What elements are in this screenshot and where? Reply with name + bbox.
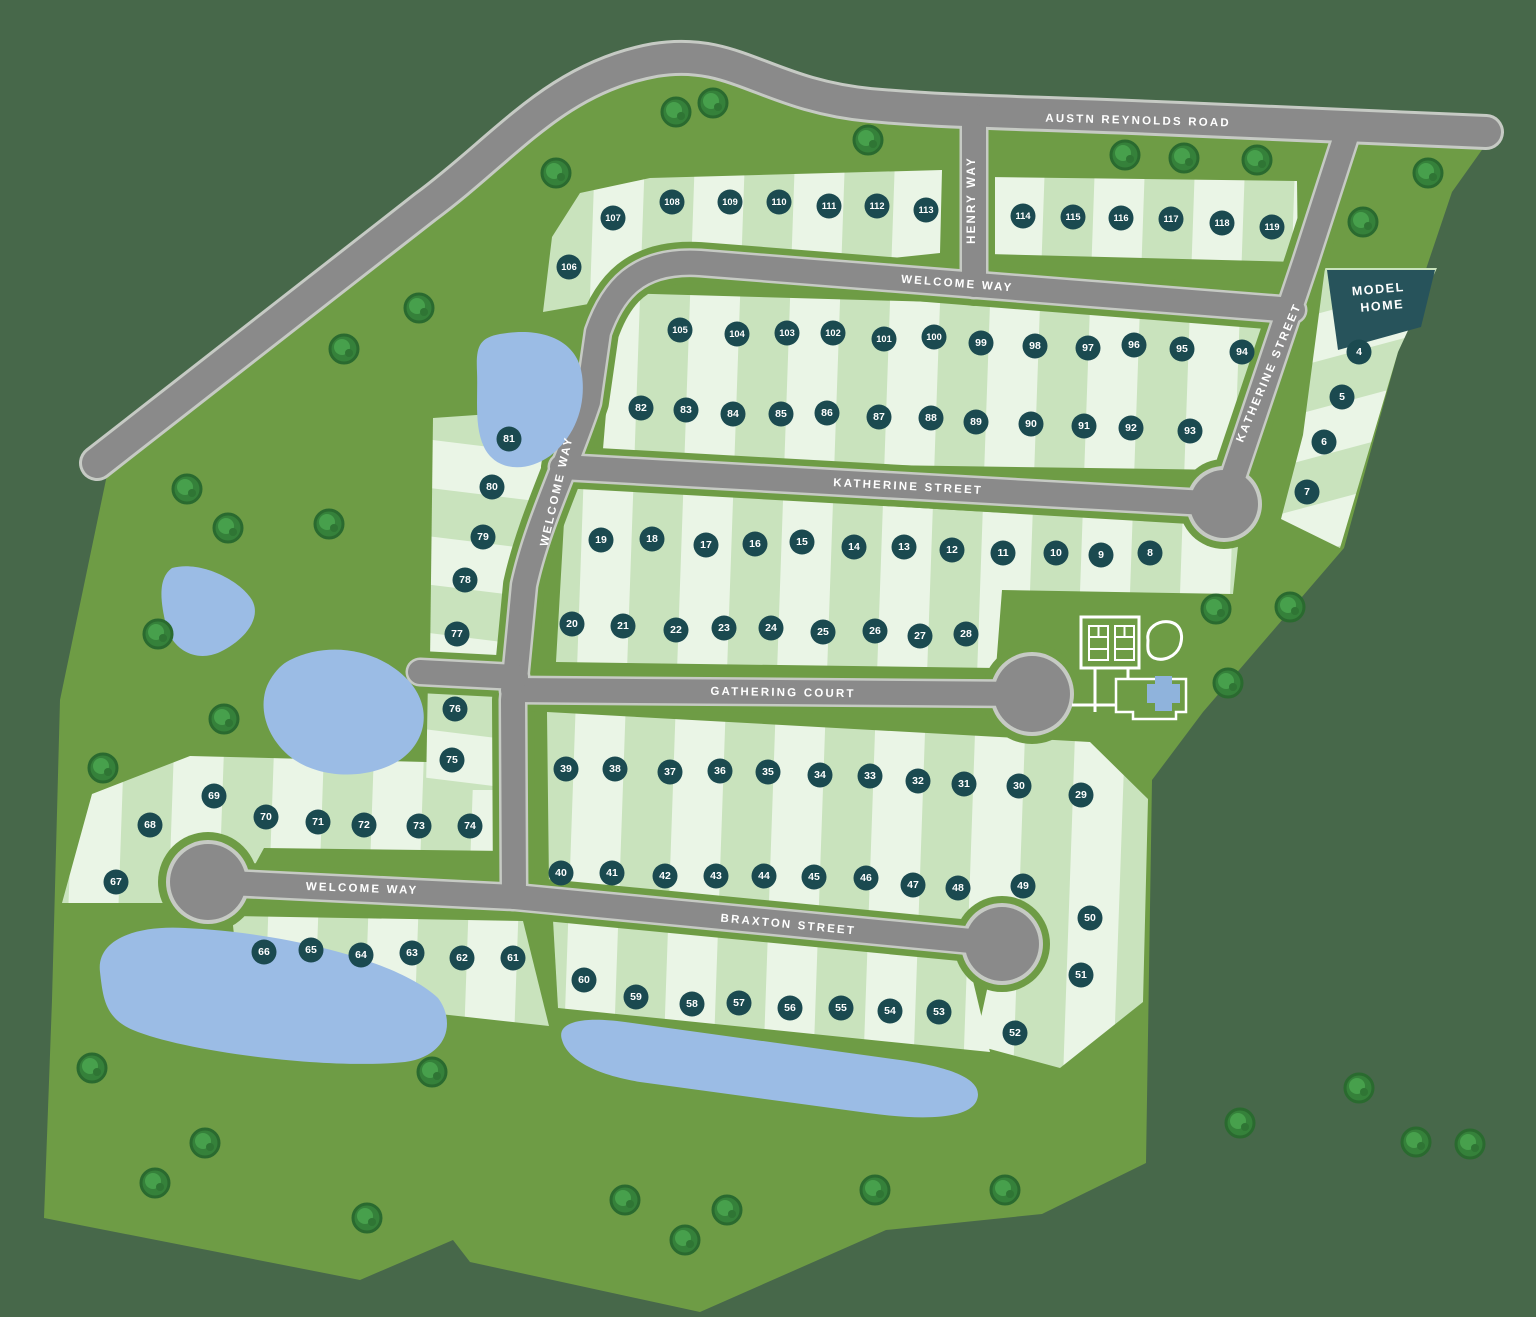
lot-marker-94[interactable]: 94 xyxy=(1230,340,1255,365)
lot-number: 75 xyxy=(446,754,458,766)
lot-number: 56 xyxy=(784,1002,796,1014)
tree-icon xyxy=(78,1054,106,1082)
tree-icon xyxy=(611,1186,639,1214)
lot-marker-23[interactable]: 23 xyxy=(712,616,737,641)
lot-marker-5[interactable]: 5 xyxy=(1330,385,1355,410)
lot-number: 114 xyxy=(1016,211,1032,221)
lot-number: 10 xyxy=(1050,547,1062,559)
lot-marker-9[interactable]: 9 xyxy=(1089,543,1114,568)
lot-marker-32[interactable]: 32 xyxy=(906,769,931,794)
lot-number: 117 xyxy=(1164,214,1179,224)
lot-number: 20 xyxy=(566,618,578,630)
lot-marker-16[interactable]: 16 xyxy=(743,532,768,557)
lot-marker-75[interactable]: 75 xyxy=(440,748,465,773)
lot-number: 65 xyxy=(305,944,317,956)
lot-number: 28 xyxy=(960,628,972,640)
lot-marker-103[interactable]: 103 xyxy=(775,321,800,346)
lot-number: 13 xyxy=(898,541,910,553)
lot-number: 94 xyxy=(1236,346,1248,358)
tree-icon xyxy=(353,1204,381,1232)
lot-marker-17[interactable]: 17 xyxy=(694,533,719,558)
lot-number: 72 xyxy=(358,819,370,831)
tree-icon xyxy=(315,510,343,538)
lot-marker-76[interactable]: 76 xyxy=(443,697,468,722)
lot-number: 97 xyxy=(1082,342,1094,354)
lot-number: 21 xyxy=(617,620,629,632)
street-label-gathering-court: GATHERING COURT xyxy=(710,686,855,701)
lot-number: 22 xyxy=(670,624,682,636)
lot-number: 83 xyxy=(680,404,692,416)
lot-number: 43 xyxy=(710,870,722,882)
lot-marker-42[interactable]: 42 xyxy=(653,864,678,889)
lot-marker-26[interactable]: 26 xyxy=(863,619,888,644)
lot-number: 110 xyxy=(772,197,787,207)
lot-number: 118 xyxy=(1215,218,1230,228)
lot-marker-59[interactable]: 59 xyxy=(624,985,649,1010)
road-stub xyxy=(420,672,516,677)
tree-icon xyxy=(854,126,882,154)
lot-marker-69[interactable]: 69 xyxy=(202,784,227,809)
lot-marker-86[interactable]: 86 xyxy=(815,401,840,426)
lot-marker-62[interactable]: 62 xyxy=(450,946,475,971)
lot-number: 57 xyxy=(733,997,745,1009)
lot-marker-40[interactable]: 40 xyxy=(549,861,574,886)
lot-number: 63 xyxy=(406,947,418,959)
lot-number: 6 xyxy=(1321,436,1327,448)
lot-number: 100 xyxy=(926,332,942,342)
lot-marker-91[interactable]: 91 xyxy=(1072,414,1097,439)
site-plan-map: MODEL HOME xyxy=(0,0,1536,1317)
lot-number: 86 xyxy=(821,407,833,419)
lot-marker-21[interactable]: 21 xyxy=(611,614,636,639)
tree-icon xyxy=(1243,146,1271,174)
lot-number: 48 xyxy=(952,882,964,894)
lot-marker-64[interactable]: 64 xyxy=(349,943,374,968)
tree-icon xyxy=(991,1176,1019,1204)
tree-icon xyxy=(699,89,727,117)
lot-number: 78 xyxy=(459,574,471,586)
lot-number: 81 xyxy=(503,433,515,445)
lot-marker-80[interactable]: 80 xyxy=(480,475,505,500)
lot-number: 95 xyxy=(1176,343,1188,355)
tree-icon xyxy=(173,475,201,503)
lot-marker-63[interactable]: 63 xyxy=(400,941,425,966)
tree-icon xyxy=(330,335,358,363)
lot-marker-72[interactable]: 72 xyxy=(352,813,377,838)
lot-number: 40 xyxy=(555,867,567,879)
lot-marker-20[interactable]: 20 xyxy=(560,612,585,637)
lot-marker-60[interactable]: 60 xyxy=(572,968,597,993)
tree-icon xyxy=(1349,208,1377,236)
lot-marker-71[interactable]: 71 xyxy=(306,810,331,835)
lot-marker-96[interactable]: 96 xyxy=(1122,333,1147,358)
lot-marker-54[interactable]: 54 xyxy=(878,999,903,1024)
lot-number: 82 xyxy=(635,402,647,414)
lot-marker-87[interactable]: 87 xyxy=(867,405,892,430)
lot-number: 88 xyxy=(925,412,937,424)
lot-marker-85[interactable]: 85 xyxy=(769,402,794,427)
lot-marker-15[interactable]: 15 xyxy=(790,530,815,555)
lot-marker-53[interactable]: 53 xyxy=(927,1000,952,1025)
lot-marker-51[interactable]: 51 xyxy=(1069,963,1094,988)
lot-number: 51 xyxy=(1075,969,1087,981)
lot-marker-118[interactable]: 118 xyxy=(1210,211,1235,236)
lot-number: 89 xyxy=(970,416,982,428)
lot-number: 8 xyxy=(1147,547,1153,559)
lot-number: 108 xyxy=(664,197,680,207)
tree-icon xyxy=(210,705,238,733)
lot-number: 19 xyxy=(595,534,607,546)
lot-number: 33 xyxy=(864,770,876,782)
tree-icon xyxy=(662,98,690,126)
lot-marker-22[interactable]: 22 xyxy=(664,618,689,643)
tree-icon xyxy=(1202,595,1230,623)
lot-number: 116 xyxy=(1114,213,1129,223)
lot-marker-114[interactable]: 114 xyxy=(1011,204,1036,229)
lot-marker-77[interactable]: 77 xyxy=(445,622,470,647)
lot-marker-82[interactable]: 82 xyxy=(629,396,654,421)
lot-marker-74[interactable]: 74 xyxy=(458,814,483,839)
lot-number: 14 xyxy=(848,541,860,553)
culdesac-welcome xyxy=(170,844,246,920)
lot-number: 4 xyxy=(1356,346,1362,358)
tree-icon xyxy=(1345,1074,1373,1102)
lot-marker-106[interactable]: 106 xyxy=(557,255,582,280)
lot-marker-55[interactable]: 55 xyxy=(829,996,854,1021)
lot-marker-47[interactable]: 47 xyxy=(901,873,926,898)
lot-number: 64 xyxy=(355,949,367,961)
lot-number: 26 xyxy=(869,625,881,637)
lot-marker-111[interactable]: 111 xyxy=(817,194,842,219)
lot-marker-101[interactable]: 101 xyxy=(872,327,897,352)
lot-marker-92[interactable]: 92 xyxy=(1119,416,1144,441)
lot-number: 96 xyxy=(1128,339,1140,351)
lot-number: 66 xyxy=(258,946,270,958)
lot-marker-39[interactable]: 39 xyxy=(554,757,579,782)
lot-number: 45 xyxy=(808,871,820,883)
tree-icon xyxy=(191,1129,219,1157)
lot-number: 60 xyxy=(578,974,590,986)
lot-number: 102 xyxy=(825,328,841,338)
lot-marker-102[interactable]: 102 xyxy=(821,321,846,346)
culdesac-braxton xyxy=(965,907,1039,981)
lot-marker-61[interactable]: 61 xyxy=(501,946,526,971)
lot-number: 15 xyxy=(796,536,808,548)
lot-number: 106 xyxy=(561,262,577,272)
lot-marker-107[interactable]: 107 xyxy=(601,206,626,231)
lot-number: 85 xyxy=(775,408,787,420)
lot-number: 55 xyxy=(835,1002,847,1014)
tree-icon xyxy=(1276,593,1304,621)
lot-marker-33[interactable]: 33 xyxy=(858,764,883,789)
lot-marker-4[interactable]: 4 xyxy=(1347,340,1372,365)
lot-marker-37[interactable]: 37 xyxy=(658,760,683,785)
lot-number: 92 xyxy=(1125,422,1137,434)
lot-number: 67 xyxy=(110,876,122,888)
lot-number: 103 xyxy=(779,328,795,338)
lot-number: 49 xyxy=(1017,880,1029,892)
tree-icon xyxy=(861,1176,889,1204)
tree-icon xyxy=(713,1196,741,1224)
lot-number: 18 xyxy=(646,533,658,545)
lot-number: 59 xyxy=(630,991,642,1003)
lot-marker-73[interactable]: 73 xyxy=(407,814,432,839)
lot-number: 109 xyxy=(722,197,738,207)
lot-number: 73 xyxy=(413,820,425,832)
lot-number: 31 xyxy=(958,778,970,790)
tree-icon xyxy=(1456,1130,1484,1158)
lot-marker-45[interactable]: 45 xyxy=(802,865,827,890)
lot-number: 39 xyxy=(560,763,572,775)
lot-number: 69 xyxy=(208,790,220,802)
lot-number: 90 xyxy=(1025,418,1037,430)
lot-number: 46 xyxy=(860,872,872,884)
lot-marker-93[interactable]: 93 xyxy=(1178,419,1203,444)
lot-number: 36 xyxy=(714,765,726,777)
lot-marker-95[interactable]: 95 xyxy=(1170,337,1195,362)
lot-number: 62 xyxy=(456,952,468,964)
lot-number: 54 xyxy=(884,1005,896,1017)
lot-marker-97[interactable]: 97 xyxy=(1076,336,1101,361)
lot-number: 105 xyxy=(672,325,688,335)
lot-number: 42 xyxy=(659,870,671,882)
lot-marker-30[interactable]: 30 xyxy=(1007,774,1032,799)
lot-marker-14[interactable]: 14 xyxy=(842,535,867,560)
tree-icon xyxy=(89,754,117,782)
lot-number: 7 xyxy=(1304,486,1310,498)
lot-number: 41 xyxy=(606,867,618,879)
tree-icon xyxy=(144,620,172,648)
lot-marker-24[interactable]: 24 xyxy=(759,616,784,641)
lot-marker-19[interactable]: 19 xyxy=(589,528,614,553)
tree-icon xyxy=(418,1058,446,1086)
lot-number: 107 xyxy=(605,213,621,223)
lot-marker-100[interactable]: 100 xyxy=(922,325,947,350)
lot-marker-83[interactable]: 83 xyxy=(674,398,699,423)
lot-marker-66[interactable]: 66 xyxy=(252,940,277,965)
lot-marker-110[interactable]: 110 xyxy=(767,190,792,215)
lot-number: 101 xyxy=(876,334,892,344)
lot-number: 37 xyxy=(664,766,676,778)
lot-marker-10[interactable]: 10 xyxy=(1044,541,1069,566)
lot-number: 115 xyxy=(1066,212,1081,222)
lot-marker-88[interactable]: 88 xyxy=(919,406,944,431)
lot-marker-41[interactable]: 41 xyxy=(600,861,625,886)
lot-marker-31[interactable]: 31 xyxy=(952,772,977,797)
lot-marker-29[interactable]: 29 xyxy=(1069,783,1094,808)
lot-marker-65[interactable]: 65 xyxy=(299,938,324,963)
lot-marker-68[interactable]: 68 xyxy=(138,813,163,838)
lot-marker-67[interactable]: 67 xyxy=(104,870,129,895)
lot-marker-58[interactable]: 58 xyxy=(680,992,705,1017)
lot-marker-84[interactable]: 84 xyxy=(721,402,746,427)
tree-icon xyxy=(405,294,433,322)
lot-number: 25 xyxy=(817,626,829,638)
lot-marker-18[interactable]: 18 xyxy=(640,527,665,552)
lot-marker-79[interactable]: 79 xyxy=(471,525,496,550)
street-label-henry-way: HENRY WAY xyxy=(966,156,978,244)
lot-marker-113[interactable]: 113 xyxy=(914,198,939,223)
lot-number: 34 xyxy=(814,769,826,781)
lot-number: 99 xyxy=(975,337,987,349)
lot-number: 32 xyxy=(912,775,924,787)
lot-marker-11[interactable]: 11 xyxy=(991,541,1016,566)
lot-marker-108[interactable]: 108 xyxy=(660,190,685,215)
tree-icon xyxy=(542,159,570,187)
lot-marker-89[interactable]: 89 xyxy=(964,410,989,435)
lot-number: 11 xyxy=(997,547,1008,559)
lot-marker-7[interactable]: 7 xyxy=(1295,480,1320,505)
lot-marker-56[interactable]: 56 xyxy=(778,996,803,1021)
lot-number: 68 xyxy=(144,819,156,831)
lot-number: 71 xyxy=(312,816,324,828)
lot-number: 17 xyxy=(700,539,712,551)
lot-number: 104 xyxy=(729,329,745,339)
tree-icon xyxy=(1111,141,1139,169)
lot-marker-78[interactable]: 78 xyxy=(453,568,478,593)
lot-marker-99[interactable]: 99 xyxy=(969,331,994,356)
tree-icon xyxy=(214,514,242,542)
lot-marker-90[interactable]: 90 xyxy=(1019,412,1044,437)
lot-number: 23 xyxy=(718,622,730,634)
lot-number: 16 xyxy=(749,538,761,550)
lot-number: 84 xyxy=(727,408,739,420)
lot-marker-36[interactable]: 36 xyxy=(708,759,733,784)
lot-number: 50 xyxy=(1084,912,1096,924)
lot-number: 58 xyxy=(686,998,698,1010)
lot-marker-104[interactable]: 104 xyxy=(725,322,750,347)
lot-number: 24 xyxy=(765,622,777,634)
culdesac-katherine xyxy=(1190,470,1258,538)
lot-marker-116[interactable]: 116 xyxy=(1109,206,1134,231)
lot-marker-81[interactable]: 81 xyxy=(497,427,522,452)
lot-number: 80 xyxy=(486,481,498,493)
tree-icon xyxy=(141,1169,169,1197)
lot-number: 27 xyxy=(914,630,926,642)
lot-marker-8[interactable]: 8 xyxy=(1138,541,1163,566)
lot-marker-6[interactable]: 6 xyxy=(1312,430,1337,455)
lot-number: 77 xyxy=(451,628,463,640)
tree-icon xyxy=(1402,1128,1430,1156)
tree-icon xyxy=(1170,144,1198,172)
lot-number: 79 xyxy=(477,531,489,543)
lot-marker-27[interactable]: 27 xyxy=(908,624,933,649)
lot-marker-50[interactable]: 50 xyxy=(1078,906,1103,931)
lot-marker-49[interactable]: 49 xyxy=(1011,874,1036,899)
lot-marker-119[interactable]: 119 xyxy=(1260,215,1285,240)
lot-marker-117[interactable]: 117 xyxy=(1159,207,1184,232)
lot-marker-44[interactable]: 44 xyxy=(752,864,777,889)
lot-marker-115[interactable]: 115 xyxy=(1061,205,1086,230)
lot-number: 61 xyxy=(507,952,519,964)
lot-number: 52 xyxy=(1009,1027,1021,1039)
lot-number: 70 xyxy=(260,811,272,823)
lot-marker-38[interactable]: 38 xyxy=(603,757,628,782)
lot-marker-112[interactable]: 112 xyxy=(865,194,890,219)
lot-number: 9 xyxy=(1098,549,1104,561)
lot-marker-12[interactable]: 12 xyxy=(940,538,965,563)
lot-number: 12 xyxy=(946,544,958,556)
lot-marker-35[interactable]: 35 xyxy=(756,760,781,785)
lot-number: 112 xyxy=(870,201,885,211)
lot-number: 93 xyxy=(1184,425,1196,437)
lot-number: 74 xyxy=(464,820,476,832)
lot-marker-25[interactable]: 25 xyxy=(811,620,836,645)
lot-marker-28[interactable]: 28 xyxy=(954,622,979,647)
tree-icon xyxy=(1414,159,1442,187)
tree-icon xyxy=(1214,669,1242,697)
lot-number: 5 xyxy=(1339,391,1345,403)
lot-marker-46[interactable]: 46 xyxy=(854,866,879,891)
lot-number: 44 xyxy=(758,870,770,882)
lot-number: 91 xyxy=(1078,420,1090,432)
lot-number: 119 xyxy=(1265,222,1280,232)
lot-marker-70[interactable]: 70 xyxy=(254,805,279,830)
lot-marker-57[interactable]: 57 xyxy=(727,991,752,1016)
lot-number: 38 xyxy=(609,763,621,775)
lot-marker-52[interactable]: 52 xyxy=(1003,1021,1028,1046)
lot-number: 111 xyxy=(822,201,837,211)
lot-marker-34[interactable]: 34 xyxy=(808,763,833,788)
lot-marker-105[interactable]: 105 xyxy=(668,318,693,343)
lot-marker-13[interactable]: 13 xyxy=(892,535,917,560)
lot-number: 29 xyxy=(1075,789,1087,801)
lot-number: 53 xyxy=(933,1006,945,1018)
tree-icon xyxy=(1226,1109,1254,1137)
lot-number: 76 xyxy=(449,703,461,715)
lot-marker-98[interactable]: 98 xyxy=(1023,334,1048,359)
culdesac-gathering xyxy=(994,656,1070,732)
tree-icon xyxy=(671,1226,699,1254)
lot-marker-109[interactable]: 109 xyxy=(718,190,743,215)
lot-number: 113 xyxy=(919,205,934,215)
lot-marker-48[interactable]: 48 xyxy=(946,876,971,901)
lot-number: 30 xyxy=(1013,780,1025,792)
lot-number: 87 xyxy=(873,411,885,423)
lot-number: 35 xyxy=(762,766,774,778)
lot-number: 98 xyxy=(1029,340,1041,352)
lot-marker-43[interactable]: 43 xyxy=(704,864,729,889)
lot-number: 47 xyxy=(907,879,919,891)
